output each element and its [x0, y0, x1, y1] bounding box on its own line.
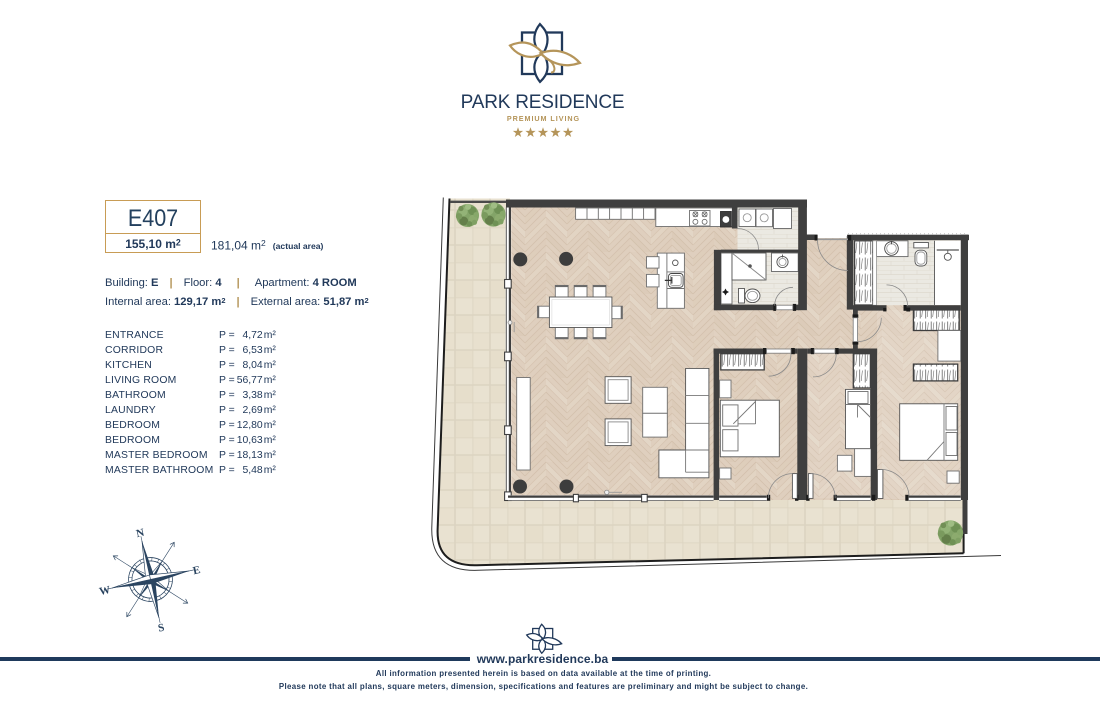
svg-text:N: N [135, 527, 145, 540]
svg-text:E: E [192, 564, 202, 577]
svg-text:W: W [98, 584, 111, 598]
svg-text:S: S [157, 622, 166, 635]
